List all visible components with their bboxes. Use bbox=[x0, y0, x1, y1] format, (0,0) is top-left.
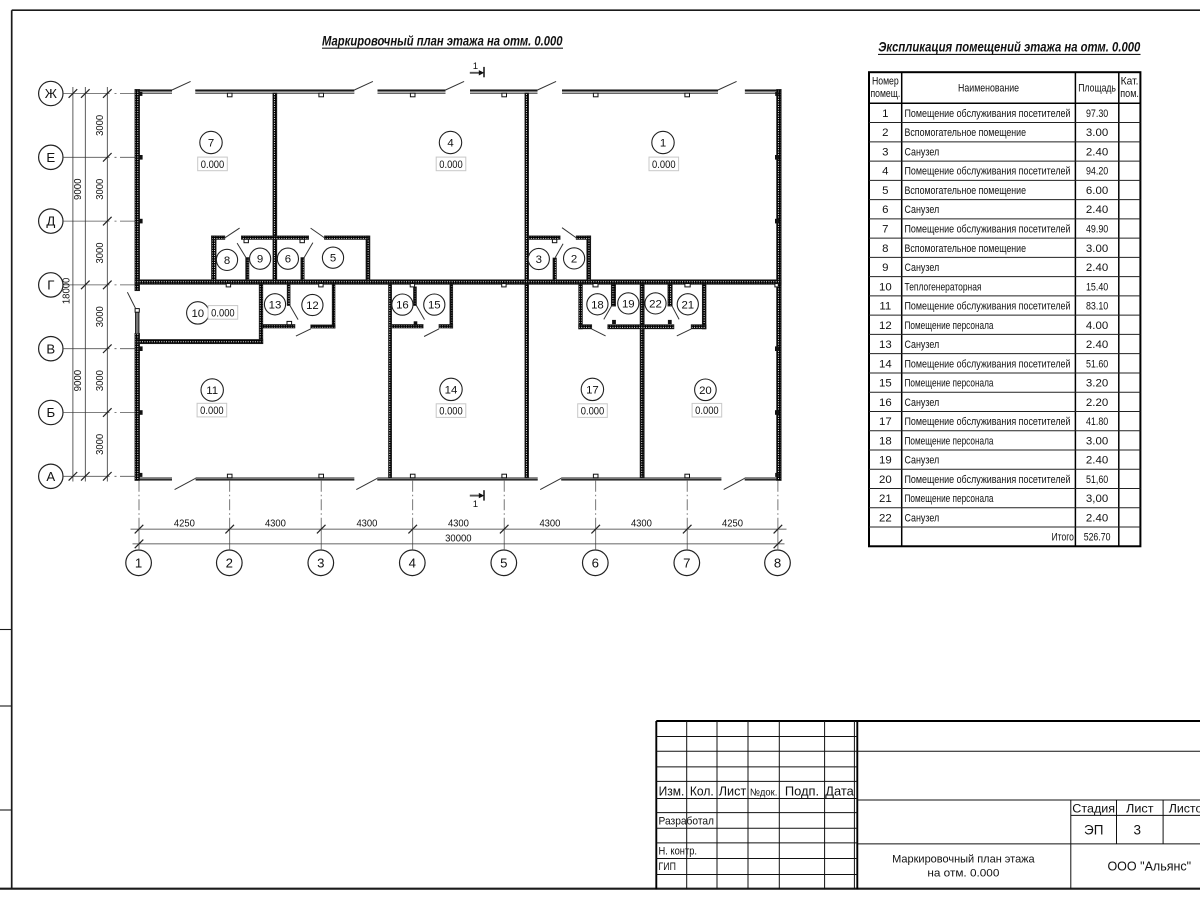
svg-text:2.40: 2.40 bbox=[1086, 339, 1108, 351]
svg-text:Изм.: Изм. bbox=[659, 784, 685, 799]
svg-text:22: 22 bbox=[879, 512, 892, 524]
svg-text:2: 2 bbox=[882, 127, 888, 139]
svg-text:ЭП: ЭП bbox=[1084, 823, 1103, 838]
svg-text:Маркировочный план этажа на от: Маркировочный план этажа на отм. 0.000 bbox=[322, 33, 563, 49]
svg-text:19: 19 bbox=[622, 298, 635, 310]
svg-text:1: 1 bbox=[882, 108, 888, 120]
svg-text:0.000: 0.000 bbox=[439, 406, 463, 418]
svg-text:3: 3 bbox=[882, 146, 888, 158]
svg-text:Б: Б bbox=[46, 405, 55, 420]
svg-text:0.000: 0.000 bbox=[211, 307, 235, 319]
svg-text:9: 9 bbox=[257, 254, 263, 266]
svg-text:Наименование: Наименование bbox=[958, 83, 1019, 95]
svg-text:4300: 4300 bbox=[448, 519, 469, 530]
svg-text:3.20: 3.20 bbox=[1086, 378, 1108, 390]
svg-text:21: 21 bbox=[681, 299, 694, 311]
svg-text:7: 7 bbox=[882, 223, 888, 235]
svg-text:Листов: Листов bbox=[1169, 801, 1200, 815]
svg-text:6.00: 6.00 bbox=[1086, 185, 1108, 197]
svg-text:Вспомогательное помещение: Вспомогательное помещение bbox=[905, 243, 1027, 255]
svg-text:3000: 3000 bbox=[95, 306, 106, 327]
svg-text:9000: 9000 bbox=[73, 178, 84, 200]
svg-text:21: 21 bbox=[879, 493, 892, 505]
svg-text:Помещение обслуживания посетит: Помещение обслуживания посетителей bbox=[905, 108, 1071, 120]
svg-text:Теплогенераторная: Теплогенераторная bbox=[905, 281, 982, 293]
svg-text:4300: 4300 bbox=[631, 519, 652, 530]
svg-text:19: 19 bbox=[879, 455, 892, 467]
svg-text:20: 20 bbox=[699, 385, 712, 397]
svg-text:1: 1 bbox=[473, 499, 478, 510]
svg-text:Подп.: Подп. bbox=[785, 784, 819, 799]
svg-text:10: 10 bbox=[879, 281, 892, 293]
svg-text:№док.: №док. bbox=[750, 788, 778, 799]
svg-text:7: 7 bbox=[208, 138, 214, 150]
svg-text:Г: Г bbox=[47, 278, 54, 293]
svg-text:3.00: 3.00 bbox=[1086, 127, 1108, 139]
svg-text:3000: 3000 bbox=[95, 178, 106, 199]
svg-text:6: 6 bbox=[592, 555, 599, 570]
svg-text:15: 15 bbox=[879, 378, 892, 390]
svg-text:4: 4 bbox=[409, 555, 416, 570]
svg-text:0.000: 0.000 bbox=[695, 405, 719, 417]
svg-text:0.000: 0.000 bbox=[581, 406, 605, 418]
svg-text:Вспомогательное помещение: Вспомогательное помещение bbox=[905, 185, 1027, 197]
svg-text:Помещение обслуживания посетит: Помещение обслуживания посетителей bbox=[905, 223, 1071, 235]
svg-text:Н. контр.: Н. контр. bbox=[659, 845, 698, 857]
svg-text:20: 20 bbox=[879, 474, 892, 486]
svg-text:3000: 3000 bbox=[95, 114, 106, 135]
svg-text:3,00: 3,00 bbox=[1086, 493, 1108, 505]
svg-text:Помещение обслуживания посетит: Помещение обслуживания посетителей bbox=[905, 166, 1071, 178]
svg-text:Помещение обслуживания посетит: Помещение обслуживания посетителей bbox=[905, 416, 1071, 428]
svg-text:3000: 3000 bbox=[95, 370, 106, 391]
svg-text:3000: 3000 bbox=[95, 242, 106, 263]
svg-text:9000: 9000 bbox=[73, 369, 84, 391]
svg-text:7: 7 bbox=[683, 555, 690, 570]
svg-text:2: 2 bbox=[571, 253, 577, 265]
svg-text:3.00: 3.00 bbox=[1086, 243, 1108, 255]
svg-text:4300: 4300 bbox=[539, 519, 560, 530]
svg-text:15.40: 15.40 bbox=[1086, 281, 1108, 293]
svg-text:1: 1 bbox=[135, 555, 142, 570]
svg-text:8: 8 bbox=[882, 243, 888, 255]
svg-text:51,60: 51,60 bbox=[1086, 474, 1108, 486]
svg-text:4300: 4300 bbox=[356, 519, 377, 530]
svg-text:4: 4 bbox=[447, 138, 453, 150]
svg-text:Санузел: Санузел bbox=[905, 512, 940, 524]
svg-text:3.00: 3.00 bbox=[1086, 435, 1108, 447]
svg-text:11: 11 bbox=[206, 385, 218, 397]
svg-text:Стадия: Стадия bbox=[1072, 801, 1115, 815]
svg-text:12: 12 bbox=[306, 300, 319, 312]
svg-text:Д: Д bbox=[46, 214, 55, 229]
svg-text:Дата: Дата bbox=[825, 784, 854, 799]
svg-text:13: 13 bbox=[879, 339, 892, 351]
svg-text:8: 8 bbox=[224, 255, 230, 267]
svg-text:2.40: 2.40 bbox=[1086, 455, 1108, 467]
svg-text:16: 16 bbox=[879, 397, 892, 409]
svg-text:12: 12 bbox=[879, 320, 892, 332]
svg-text:2.40: 2.40 bbox=[1086, 512, 1108, 524]
svg-text:6: 6 bbox=[882, 204, 888, 216]
svg-text:Помещение персонала: Помещение персонала bbox=[905, 435, 995, 447]
svg-text:Кат.: Кат. bbox=[1121, 76, 1139, 88]
svg-text:6: 6 bbox=[285, 254, 291, 266]
svg-text:Санузел: Санузел bbox=[905, 262, 940, 274]
svg-text:ООО "Альянс": ООО "Альянс" bbox=[1107, 859, 1191, 874]
svg-text:18: 18 bbox=[879, 435, 892, 447]
svg-text:22: 22 bbox=[649, 298, 662, 310]
svg-text:0.000: 0.000 bbox=[652, 159, 676, 171]
svg-text:Экспликация помещений этажа на: Экспликация помещений этажа на отм. 0.00… bbox=[878, 40, 1140, 56]
svg-text:49.90: 49.90 bbox=[1086, 223, 1108, 235]
svg-text:3000: 3000 bbox=[95, 433, 106, 454]
svg-text:5: 5 bbox=[330, 253, 336, 265]
svg-text:2.40: 2.40 bbox=[1086, 146, 1108, 158]
svg-text:Итого: Итого bbox=[1052, 532, 1074, 544]
svg-text:17: 17 bbox=[586, 384, 599, 396]
svg-text:Кол.: Кол. bbox=[690, 784, 714, 799]
svg-text:Санузел: Санузел bbox=[905, 397, 940, 409]
svg-text:83.10: 83.10 bbox=[1086, 301, 1108, 313]
svg-text:0.000: 0.000 bbox=[201, 159, 225, 171]
svg-text:2: 2 bbox=[226, 555, 233, 570]
svg-text:Санузел: Санузел bbox=[905, 455, 940, 467]
svg-text:2.40: 2.40 bbox=[1086, 204, 1108, 216]
svg-text:4300: 4300 bbox=[265, 519, 286, 530]
svg-text:Помещение обслуживания посетит: Помещение обслуживания посетителей bbox=[905, 358, 1071, 370]
svg-text:В: В bbox=[46, 341, 55, 356]
svg-text:15: 15 bbox=[428, 300, 441, 312]
svg-text:4: 4 bbox=[882, 166, 888, 178]
svg-text:0.000: 0.000 bbox=[200, 405, 224, 417]
svg-text:Лист: Лист bbox=[719, 784, 747, 799]
svg-text:Санузел: Санузел bbox=[905, 204, 940, 216]
svg-text:Помещение обслуживания посетит: Помещение обслуживания посетителей bbox=[905, 301, 1071, 313]
svg-text:5: 5 bbox=[500, 555, 507, 570]
svg-text:41.80: 41.80 bbox=[1086, 416, 1108, 428]
svg-text:17: 17 bbox=[879, 416, 892, 428]
svg-text:9: 9 bbox=[882, 262, 888, 274]
svg-text:Маркировочный план этажа: Маркировочный план этажа bbox=[892, 853, 1035, 865]
svg-text:пом.: пом. bbox=[1120, 88, 1139, 100]
svg-text:помещ.: помещ. bbox=[870, 88, 900, 100]
svg-text:А: А bbox=[46, 469, 55, 484]
svg-text:4250: 4250 bbox=[174, 519, 195, 530]
svg-text:1: 1 bbox=[473, 61, 478, 72]
svg-text:97.30: 97.30 bbox=[1086, 108, 1108, 120]
svg-text:18: 18 bbox=[591, 299, 604, 311]
svg-text:Е: Е bbox=[46, 150, 55, 165]
svg-text:Разработал: Разработал bbox=[659, 815, 715, 827]
svg-text:16: 16 bbox=[396, 300, 409, 312]
svg-text:0.000: 0.000 bbox=[439, 159, 463, 171]
svg-text:1: 1 bbox=[660, 138, 666, 150]
svg-text:Лист: Лист bbox=[1126, 801, 1154, 815]
svg-text:Помещение персонала: Помещение персонала bbox=[905, 378, 995, 390]
svg-text:Ж: Ж bbox=[45, 86, 57, 101]
svg-text:94.20: 94.20 bbox=[1086, 166, 1108, 178]
svg-text:4.00: 4.00 bbox=[1086, 320, 1108, 332]
svg-text:3: 3 bbox=[317, 555, 324, 570]
svg-text:Санузел: Санузел bbox=[905, 339, 940, 351]
svg-text:Помещение персонала: Помещение персонала bbox=[905, 493, 995, 505]
svg-text:Вспомогательное помещение: Вспомогательное помещение bbox=[905, 127, 1027, 139]
svg-text:Помещение обслуживания посетит: Помещение обслуживания посетителей bbox=[905, 474, 1071, 486]
svg-text:51.60: 51.60 bbox=[1086, 358, 1108, 370]
svg-text:11: 11 bbox=[879, 301, 891, 313]
svg-text:2.20: 2.20 bbox=[1086, 397, 1108, 409]
svg-text:ГИП: ГИП bbox=[659, 861, 676, 873]
svg-text:на отм. 0.000: на отм. 0.000 bbox=[927, 868, 999, 880]
svg-text:14: 14 bbox=[879, 358, 892, 370]
svg-text:4250: 4250 bbox=[722, 519, 743, 530]
svg-text:14: 14 bbox=[445, 384, 458, 396]
svg-text:Площадь: Площадь bbox=[1078, 83, 1116, 95]
svg-text:30000: 30000 bbox=[445, 533, 472, 544]
svg-text:5: 5 bbox=[882, 185, 888, 197]
svg-text:8: 8 bbox=[774, 555, 781, 570]
svg-text:2.40: 2.40 bbox=[1086, 262, 1108, 274]
svg-text:Санузел: Санузел bbox=[905, 146, 940, 158]
svg-text:526.70: 526.70 bbox=[1084, 532, 1111, 544]
svg-text:Номер: Номер bbox=[872, 76, 899, 88]
svg-text:13: 13 bbox=[269, 299, 282, 311]
svg-text:3: 3 bbox=[1133, 823, 1141, 838]
svg-text:10: 10 bbox=[191, 308, 204, 320]
svg-text:18000: 18000 bbox=[61, 277, 72, 304]
svg-text:3: 3 bbox=[536, 254, 542, 266]
svg-text:Помещение персонала: Помещение персонала bbox=[905, 320, 995, 332]
